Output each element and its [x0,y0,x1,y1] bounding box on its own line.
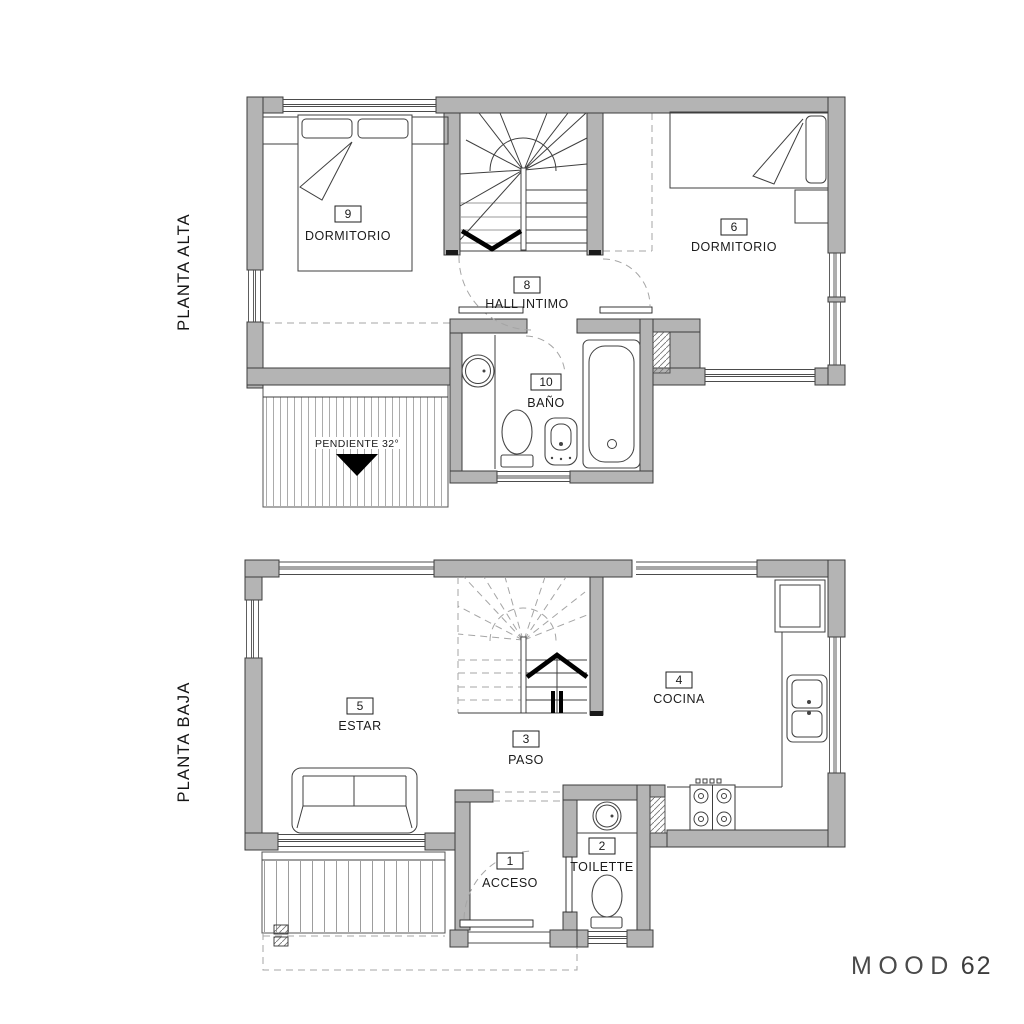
kitchen-sink [787,675,827,742]
pillow [302,119,352,138]
svg-text:9: 9 [345,207,352,221]
pillow [806,116,826,183]
pendiente-label: PENDIENTE 32° [315,438,399,450]
deck [262,852,577,970]
svg-text:10: 10 [539,375,553,389]
room-label-cocina: 4 COCINA [653,672,705,706]
svg-text:ACCESO: ACCESO [482,876,538,890]
room-label-bano: 10 BAÑO [527,374,564,410]
room-label-paso: 3 PASO [508,731,544,767]
side-label-planta-alta: PLANTA ALTA [175,213,193,331]
room-label-hall-intimo: 8 HALL INTIMO [485,277,569,311]
floorplan-sheet: PENDIENTE 32° 9 DORMITORIO 6 DORMITORIO … [0,0,1024,1024]
bathtub [583,340,640,468]
svg-text:4: 4 [676,673,683,687]
svg-text:6: 6 [731,220,738,234]
sliding-door [278,835,425,847]
room-label-dormitorio-9: 9 DORMITORIO [305,206,391,243]
room-label-dormitorio-6: 6 DORMITORIO [691,219,777,254]
window [588,932,627,944]
toilet [592,875,622,917]
window [830,253,841,297]
washbasin [462,355,494,387]
paso-opening [493,792,563,801]
deck-step [274,937,288,946]
svg-text:PASO: PASO [508,753,544,767]
svg-text:5: 5 [357,699,364,713]
window [247,600,259,658]
svg-text:DORMITORIO: DORMITORIO [305,229,391,243]
svg-text:2: 2 [599,839,606,853]
door-swing [526,336,565,374]
door-leaf [600,307,652,313]
entry-threshold [468,932,550,943]
stair-direction-arrow-upper [462,231,521,249]
sofa [292,768,417,833]
staircase-lower [458,577,587,713]
window [705,370,815,382]
floor-plan-upper: PENDIENTE 32° 9 DORMITORIO 6 DORMITORIO … [247,97,845,507]
deck-step [274,925,288,934]
door-swing [603,259,650,306]
svg-text:TOILETTE: TOILETTE [570,860,634,874]
window [249,270,261,322]
window [283,100,436,112]
svg-text:8: 8 [524,278,531,292]
toilet [502,410,532,454]
svg-text:HALL INTIMO: HALL INTIMO [485,297,569,311]
floor-plan-lower: 5 ESTAR 3 PASO 4 COCINA 1 ACCESO 2 TOILE… [245,560,845,970]
door-leaf [460,920,533,927]
room-label-estar: 5 ESTAR [338,698,381,733]
svg-text:COCINA: COCINA [653,692,705,706]
room-label-toilette: 2 TOILETTE [570,838,634,874]
nightstand [795,190,828,223]
pillow [358,119,408,138]
window [830,302,841,365]
svg-text:BAÑO: BAÑO [527,396,564,410]
window [830,637,841,773]
svg-text:DORMITORIO: DORMITORIO [691,240,777,254]
svg-text:ESTAR: ESTAR [338,719,381,733]
room-label-acceso: 1 ACCESO [482,853,538,890]
side-stair-hatch-lower [650,797,665,833]
bed-double [263,115,448,271]
side-label-planta-baja: PLANTA BAJA [175,681,193,802]
window [497,472,570,482]
blanket-fold [753,119,803,184]
bed-single [670,112,828,223]
window [279,562,434,575]
nightstand [263,117,298,144]
blanket-fold [300,142,352,200]
bidet [545,418,577,465]
brand-logo: MOOD62 [851,952,993,980]
brand-logo-word: MOOD [851,952,955,980]
nightstand [412,117,448,144]
fridge [775,580,825,632]
washbasin [593,802,621,830]
side-stair-hatch-upper [653,332,670,373]
stove [690,779,735,830]
staircase-upper [460,113,587,251]
floorplan-drawing: PENDIENTE 32° 9 DORMITORIO 6 DORMITORIO … [0,0,1024,1024]
svg-text:3: 3 [523,732,530,746]
svg-text:1: 1 [507,854,514,868]
window [636,562,757,575]
brand-logo-number: 62 [961,952,993,980]
